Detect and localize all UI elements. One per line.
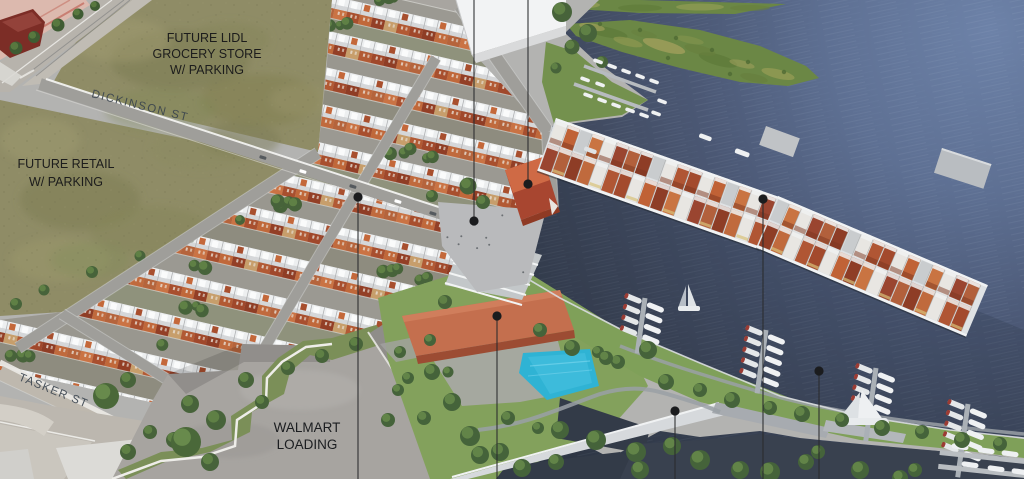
svg-text:FUTURE LIDL: FUTURE LIDL — [167, 31, 248, 45]
svg-text:FUTURE RETAIL: FUTURE RETAIL — [18, 157, 115, 171]
svg-text:LOADING: LOADING — [277, 437, 338, 452]
svg-text:WALMART: WALMART — [274, 420, 341, 435]
svg-text:W/ PARKING: W/ PARKING — [29, 175, 103, 189]
svg-text:GROCERY STORE: GROCERY STORE — [152, 47, 261, 61]
svg-text:W/ PARKING: W/ PARKING — [170, 63, 244, 77]
